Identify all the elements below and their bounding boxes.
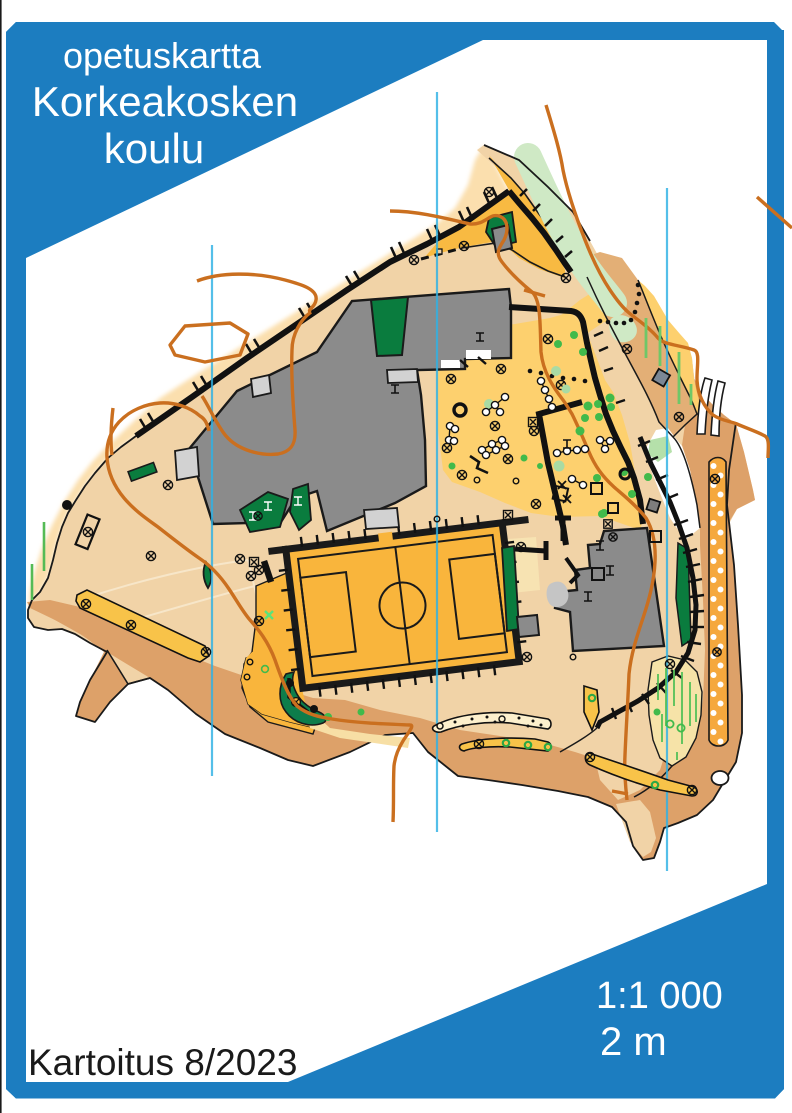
svg-text:opetuskartta: opetuskartta: [63, 35, 262, 76]
svg-text:2 m: 2 m: [600, 1020, 667, 1064]
svg-text:Kartoitus 8/2023: Kartoitus 8/2023: [28, 1042, 297, 1083]
svg-text:1:1 000: 1:1 000: [596, 975, 723, 1017]
svg-text:koulu: koulu: [104, 125, 204, 172]
svg-text:Korkeakosken: Korkeakosken: [32, 78, 298, 125]
